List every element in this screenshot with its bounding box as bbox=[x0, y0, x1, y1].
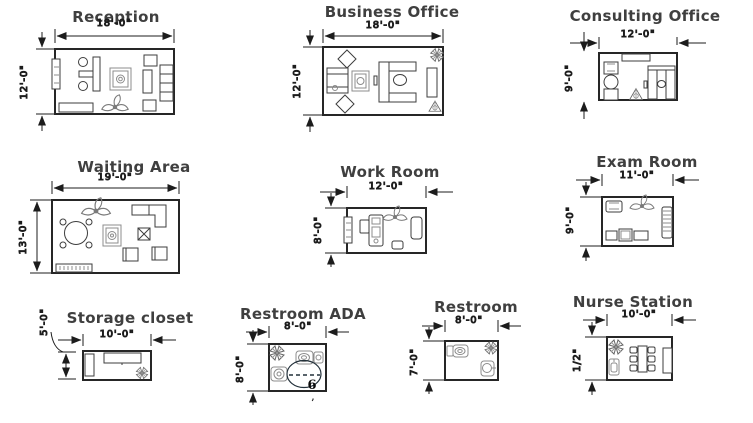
floor-plan-canvas: Reception 18'-0" 12'-0" bbox=[0, 0, 753, 423]
shelf-icon bbox=[622, 54, 650, 61]
width-dim-label: 19'-0" bbox=[98, 172, 133, 183]
sink-icon bbox=[481, 361, 496, 376]
room-storage-closet: Storage closet 10'-0" 5'-0" bbox=[39, 308, 193, 380]
door-icon bbox=[85, 354, 94, 376]
chair-icon bbox=[394, 75, 407, 86]
toilet-icon bbox=[296, 351, 323, 364]
height-dim-label: 9'-0" bbox=[564, 64, 575, 92]
height-dim-label: 12'-0" bbox=[292, 64, 303, 99]
chair-icon bbox=[152, 247, 167, 260]
width-dim-label: 12'-0" bbox=[621, 29, 656, 40]
width-dim-label: 12'-0" bbox=[369, 181, 404, 192]
chair-icon bbox=[86, 219, 92, 225]
room-exam-room: Exam Room 11'-0" 9'-0" bbox=[565, 153, 699, 261]
width-dim-label: 18'-0" bbox=[366, 20, 401, 31]
width-dim-label: 10'-0" bbox=[100, 329, 135, 340]
chair-icon bbox=[604, 89, 618, 100]
width-dimension: 12'-0" bbox=[320, 181, 453, 198]
width-dim-label: 18'-0" bbox=[97, 18, 132, 29]
rug-icon bbox=[352, 71, 369, 91]
rug-icon bbox=[110, 68, 131, 90]
room-restroom: Restroom 8'-0" 7'-0" bbox=[409, 298, 521, 394]
chair-icon bbox=[60, 219, 66, 225]
chair-icon bbox=[630, 356, 637, 362]
height-dimension: 9'-0" bbox=[565, 182, 602, 261]
width-dim-label: 8'-0" bbox=[284, 321, 312, 332]
height-dimension: 9'-0" bbox=[564, 32, 584, 119]
width-dimension: 12'-0" bbox=[570, 29, 706, 49]
height-dimension: 7'-0" bbox=[409, 327, 445, 394]
room-title: Work Room bbox=[340, 163, 439, 181]
side-table-icon bbox=[138, 228, 150, 240]
shelf-icon bbox=[104, 353, 141, 363]
stool-icon bbox=[392, 241, 403, 249]
width-dimension: 8'-0" bbox=[246, 321, 349, 338]
room-reception: Reception 18'-0" 12'-0" bbox=[19, 8, 174, 131]
room-title: Consulting Office bbox=[570, 7, 721, 25]
width-dim-label: 10'-0" bbox=[622, 309, 657, 320]
chair-icon bbox=[60, 242, 66, 248]
chair-icon bbox=[144, 55, 157, 66]
shelf-icon bbox=[160, 65, 173, 101]
room-restroom-ada: Restroom ADA 8'-0" 8'-0" bbox=[235, 305, 366, 405]
height-dim-label: 8'-0" bbox=[235, 355, 246, 383]
height-dim-label: 5'-0" bbox=[39, 308, 50, 336]
exam-table-icon bbox=[662, 207, 672, 238]
chair-icon bbox=[658, 81, 666, 88]
turning-radius-note: 6 bbox=[307, 378, 316, 393]
round-table-icon bbox=[60, 219, 92, 248]
counter-icon bbox=[59, 103, 93, 112]
sofa-icon bbox=[327, 68, 348, 93]
width-dimension: 11'-0" bbox=[576, 170, 699, 186]
chair-icon bbox=[648, 347, 655, 353]
width-dimension: 10'-0" bbox=[58, 329, 176, 346]
height-dimension: 1/2" bbox=[572, 322, 607, 395]
height-dimension: 12'-0" bbox=[292, 30, 323, 132]
chair-icon bbox=[143, 100, 156, 111]
height-dim-label: 7'-0" bbox=[409, 348, 420, 376]
height-dim-label: 12'-0" bbox=[19, 65, 30, 100]
stray-mark: , bbox=[312, 392, 315, 402]
height-dimension: 8'-0" bbox=[235, 330, 269, 405]
rug-icon bbox=[103, 225, 121, 246]
room-consulting-office: Consulting Office 12'-0" 9'-0" bbox=[564, 7, 720, 119]
desk-icon bbox=[606, 229, 648, 241]
room-title: Restroom bbox=[434, 298, 518, 316]
width-dim-label: 11'-0" bbox=[620, 170, 655, 181]
chair-icon bbox=[79, 82, 88, 91]
height-dimension: 8'-0" bbox=[313, 193, 347, 267]
chair-icon bbox=[79, 58, 88, 67]
height-dim-label: 13'-0" bbox=[18, 220, 29, 255]
room-waiting-area: Waiting Area 19'-0" 13'-0" bbox=[18, 158, 191, 273]
width-dim-label: 8'-0" bbox=[455, 315, 483, 326]
room-work-room: Work Room 12'-0" 8'-0" bbox=[313, 163, 453, 267]
chair-icon bbox=[123, 248, 138, 261]
width-dimension: 8'-0" bbox=[422, 315, 521, 332]
credenza-icon bbox=[427, 68, 437, 97]
chair-icon bbox=[648, 356, 655, 362]
room-title: Exam Room bbox=[596, 153, 697, 171]
chair-icon bbox=[360, 220, 369, 233]
room-title: Waiting Area bbox=[77, 158, 190, 176]
round-table-icon bbox=[604, 75, 618, 89]
meeting-table-icon bbox=[630, 346, 655, 372]
height-dim-label: 8'-0" bbox=[313, 216, 324, 244]
counter-icon bbox=[663, 348, 672, 373]
table-icon bbox=[411, 217, 422, 239]
height-dim-label: 1/2" bbox=[572, 348, 583, 372]
chair-icon bbox=[648, 365, 655, 371]
height-dim-label: 9'-0" bbox=[565, 206, 576, 234]
room-business-office: Business Office 18'-0" 12'-0" bbox=[292, 3, 459, 132]
side-table-icon bbox=[143, 70, 152, 93]
chair-icon bbox=[630, 347, 637, 353]
floor-plan-sheet: Reception 18'-0" 12'-0" bbox=[0, 0, 753, 423]
height-dimension: 13'-0" bbox=[18, 200, 52, 273]
toilet-icon bbox=[447, 345, 468, 357]
chair-icon bbox=[86, 242, 92, 248]
desk-icon bbox=[369, 215, 383, 246]
chair-icon bbox=[630, 365, 637, 371]
room-nurse-station: Nurse Station 10'-0" 1/2" bbox=[572, 293, 696, 395]
sink-icon bbox=[609, 359, 619, 375]
bench-icon bbox=[56, 264, 92, 272]
height-dimension: 12'-0" bbox=[19, 32, 55, 131]
room-title: Storage closet bbox=[67, 309, 194, 327]
sink-icon bbox=[271, 367, 287, 381]
width-dimension: 10'-0" bbox=[583, 309, 696, 326]
room-title: Business Office bbox=[325, 3, 460, 21]
door-icon bbox=[52, 59, 60, 89]
width-dimension: 18'-0" bbox=[323, 20, 443, 43]
